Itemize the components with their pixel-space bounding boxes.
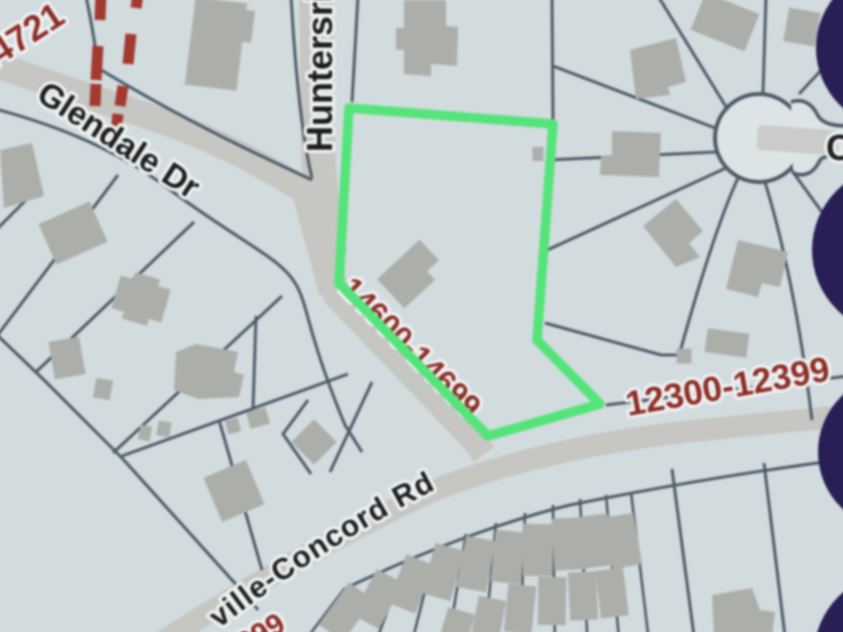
svg-text:Ct: Ct [826,127,843,168]
svg-text:Huntersridge: Huntersridge [299,0,340,152]
